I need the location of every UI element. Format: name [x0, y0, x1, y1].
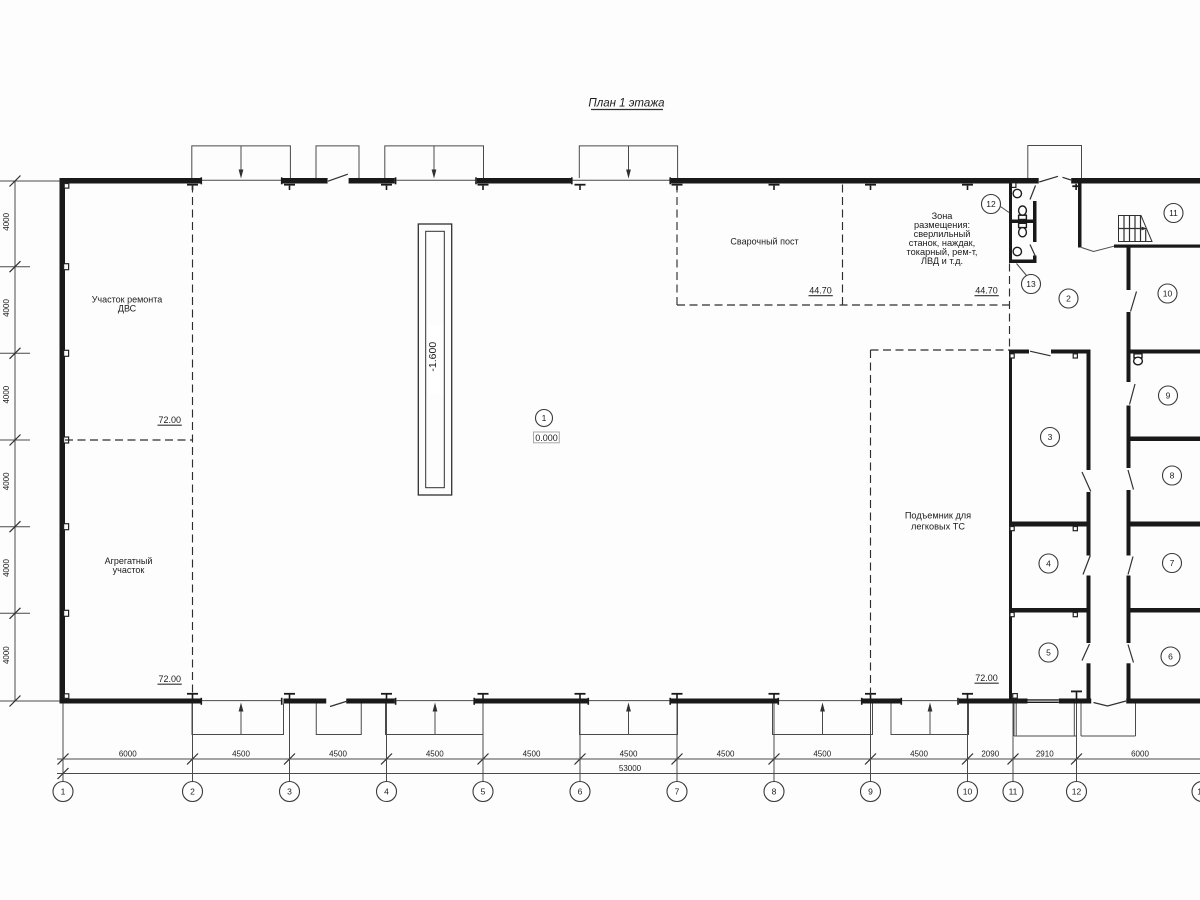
svg-text:13: 13: [1026, 279, 1036, 289]
svg-text:11: 11: [1169, 208, 1178, 218]
svg-text:1: 1: [542, 413, 547, 423]
svg-text:44.70: 44.70: [809, 286, 832, 296]
svg-text:4500: 4500: [910, 750, 928, 759]
svg-text:легковых ТС: легковых ТС: [911, 522, 965, 532]
svg-text:2910: 2910: [1036, 750, 1054, 759]
svg-text:0.000: 0.000: [535, 433, 558, 443]
svg-text:12: 12: [986, 199, 996, 209]
svg-text:4: 4: [384, 787, 389, 797]
svg-text:72.00: 72.00: [159, 674, 182, 684]
svg-text:7: 7: [1170, 558, 1175, 568]
svg-text:5: 5: [1046, 648, 1051, 658]
svg-text:-1.600: -1.600: [427, 342, 439, 372]
svg-text:4000: 4000: [2, 646, 11, 664]
svg-text:11: 11: [1009, 787, 1018, 797]
svg-text:10: 10: [1163, 289, 1173, 299]
svg-text:4500: 4500: [620, 750, 638, 759]
svg-text:72.00: 72.00: [975, 673, 998, 683]
svg-text:44.70: 44.70: [975, 286, 998, 296]
svg-text:3: 3: [287, 787, 292, 797]
svg-text:3: 3: [1048, 432, 1053, 442]
svg-text:2: 2: [190, 787, 195, 797]
svg-text:9: 9: [868, 787, 873, 797]
svg-text:4500: 4500: [813, 750, 831, 759]
svg-text:8: 8: [1170, 471, 1175, 481]
svg-text:План 1 этажа: План 1 этажа: [588, 98, 664, 110]
svg-text:6: 6: [1168, 652, 1173, 662]
svg-text:53000: 53000: [619, 764, 642, 773]
svg-text:4000: 4000: [2, 559, 11, 577]
svg-text:ДВС: ДВС: [118, 304, 137, 314]
svg-text:6000: 6000: [1131, 750, 1149, 759]
svg-text:12: 12: [1072, 787, 1082, 797]
svg-text:1: 1: [61, 787, 66, 797]
svg-text:4000: 4000: [2, 299, 11, 317]
svg-text:Подъемник для: Подъемник для: [905, 511, 971, 521]
svg-text:4000: 4000: [2, 385, 11, 403]
svg-text:участок: участок: [113, 565, 145, 575]
svg-text:6000: 6000: [119, 750, 137, 759]
svg-text:6: 6: [578, 787, 583, 797]
svg-text:ЛВД и т.д.: ЛВД и т.д.: [921, 256, 963, 266]
svg-text:8: 8: [772, 787, 777, 797]
svg-text:5: 5: [481, 787, 486, 797]
svg-text:4500: 4500: [232, 750, 250, 759]
svg-text:4000: 4000: [2, 212, 11, 230]
svg-text:4500: 4500: [329, 750, 347, 759]
svg-text:9: 9: [1166, 391, 1171, 401]
svg-text:4: 4: [1046, 559, 1051, 569]
svg-text:4500: 4500: [426, 750, 444, 759]
svg-text:4500: 4500: [523, 750, 541, 759]
svg-text:72.00: 72.00: [159, 415, 182, 425]
svg-text:2: 2: [1066, 294, 1071, 304]
svg-text:2090: 2090: [981, 750, 999, 759]
svg-text:10: 10: [963, 787, 973, 797]
svg-text:7: 7: [675, 787, 680, 797]
svg-text:4500: 4500: [717, 750, 735, 759]
svg-text:Сварочный пост: Сварочный пост: [730, 237, 798, 247]
svg-text:4000: 4000: [2, 472, 11, 490]
